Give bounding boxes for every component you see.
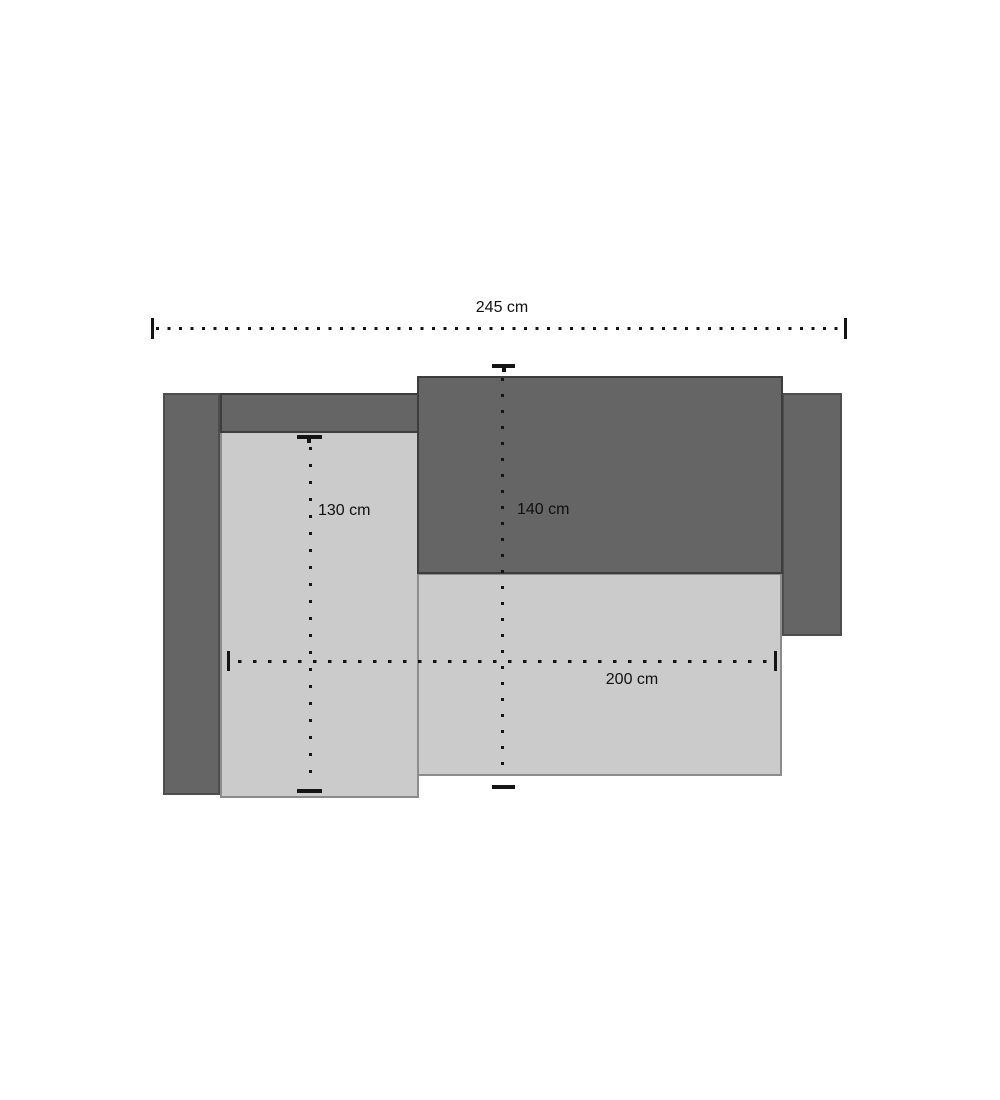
dimension-seat-width-label: 200 cm: [606, 672, 658, 688]
dimension-total-width-line: [156, 327, 843, 330]
dimension-seat-width-tick-right: [774, 651, 777, 671]
dimension-left-depth-tick-top: [297, 435, 322, 439]
dimension-seat-width-tick-left: [227, 651, 230, 671]
dimension-total-width-label: 245 cm: [476, 300, 528, 316]
dimension-total-width-tick-right: [844, 318, 847, 339]
dimension-center-depth-label: 140 cm: [517, 502, 569, 518]
dimension-seat-width-line: [238, 660, 768, 663]
dimension-center-depth-line: [501, 378, 504, 773]
dimension-center-depth-tick-top: [492, 364, 515, 368]
dimension-left-depth-line: [309, 447, 312, 785]
sofa-dimension-diagram: 245 cm 130 cm 140 cm 200 cm: [0, 0, 1000, 1100]
part-left-armrest: [163, 393, 220, 795]
dimension-left-depth-label: 130 cm: [318, 503, 370, 519]
part-main-seat: [417, 573, 782, 776]
part-chaise-seat: [220, 431, 419, 798]
dimension-left-depth-tick-bottom: [297, 789, 322, 793]
dimension-center-depth-tick-bottom: [492, 785, 515, 789]
part-backrest-strip-left: [220, 393, 419, 433]
part-right-armrest: [782, 393, 842, 636]
part-backrest-main: [417, 376, 783, 574]
dimension-total-width-tick-left: [151, 318, 154, 339]
